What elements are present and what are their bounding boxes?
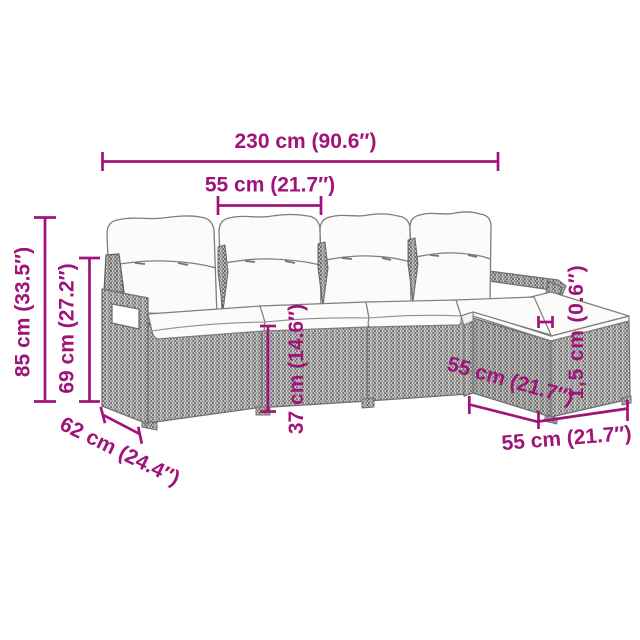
- svg-text:230 cm (90.6″): 230 cm (90.6″): [235, 130, 377, 153]
- svg-text:37 cm (14.6″): 37 cm (14.6″): [285, 304, 308, 434]
- svg-text:69 cm (27.2″): 69 cm (27.2″): [56, 263, 79, 393]
- svg-text:55 cm (21.7″): 55 cm (21.7″): [205, 174, 335, 197]
- svg-text:1,5 cm (0.6″): 1,5 cm (0.6″): [565, 265, 588, 400]
- svg-text:85 cm (33.5″): 85 cm (33.5″): [12, 247, 35, 377]
- svg-text:55 cm (21.7″): 55 cm (21.7″): [501, 422, 633, 455]
